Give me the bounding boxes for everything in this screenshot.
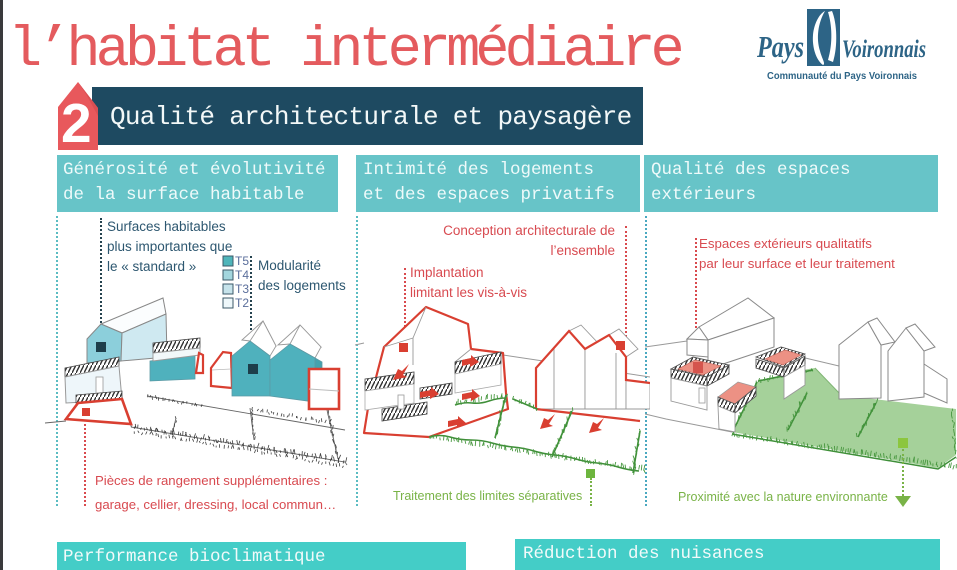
svg-text:2: 2 (61, 92, 92, 152)
svg-text:Pays: Pays (756, 29, 804, 64)
svg-text:T5: T5 (235, 254, 249, 268)
svg-text:T4: T4 (235, 268, 249, 282)
svg-text:Communauté du Pays Voironnais: Communauté du Pays Voironnais (767, 71, 917, 82)
svg-text:Voironnais: Voironnais (842, 36, 926, 63)
